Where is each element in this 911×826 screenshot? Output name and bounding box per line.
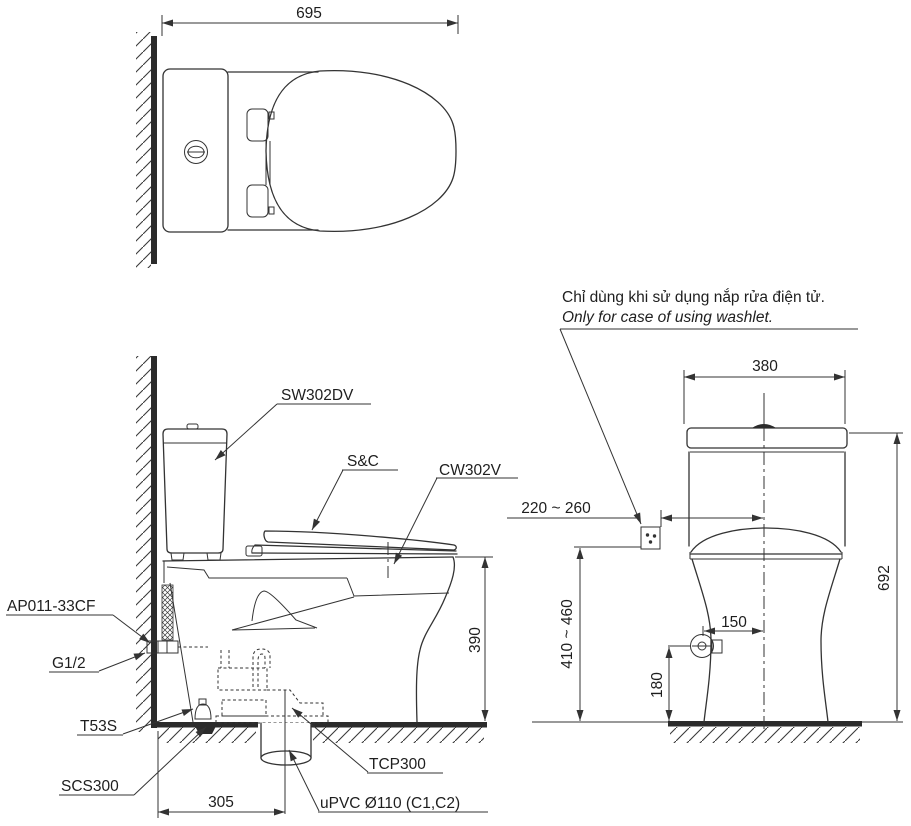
- pedestal-left: [692, 559, 711, 722]
- pedestal-right: [821, 559, 840, 722]
- label-floor-flange-text: SCS300: [61, 778, 119, 795]
- label-seat-cover-text: S&C: [347, 453, 379, 470]
- note-english: Only for case of using washlet.: [562, 309, 773, 326]
- dim-390-value: 390: [467, 627, 484, 653]
- tank-lid-front: [687, 428, 847, 448]
- dim-220-260-value: 220 ~ 260: [521, 500, 591, 517]
- seat-hinge: [247, 109, 274, 217]
- wall-hatch: [136, 356, 151, 732]
- front-view: Chỉ dùng khi sử dụng nắp rửa điện tử. On…: [507, 289, 903, 743]
- lid-button-front: [752, 424, 776, 428]
- label-seat-cover: S&C: [309, 453, 398, 532]
- floor-hatch: [313, 727, 484, 743]
- seat-front: [690, 528, 842, 559]
- seat-hinge-side: [246, 546, 262, 556]
- bowl-top: [228, 71, 456, 232]
- label-tank: SW302DV: [213, 387, 371, 463]
- floor-section: [532, 721, 903, 743]
- wall-line: [151, 36, 157, 264]
- tank-button: [187, 424, 198, 429]
- wall-section: [136, 32, 157, 268]
- note-vietnamese: Chỉ dùng khi sử dụng nắp rửa điện tử.: [562, 289, 825, 306]
- dim-410-460-value: 410 ~ 460: [559, 599, 576, 669]
- dim-150-value: 150: [721, 614, 747, 631]
- dim-692-value: 692: [876, 565, 893, 591]
- stop-valve-side: [195, 699, 211, 719]
- wall-hatch: [136, 32, 151, 268]
- dim-outlet-offset: 220 ~ 260: [507, 500, 763, 527]
- label-bowl-text: CW302V: [439, 462, 502, 479]
- supply-valve-front: [691, 635, 723, 658]
- dim-valve-height: 180: [649, 646, 691, 721]
- seat-lid-outline: [266, 71, 456, 232]
- seat-cover-side: [246, 531, 457, 578]
- label-tank-text: SW302DV: [281, 387, 354, 404]
- wall-section: [136, 356, 157, 732]
- wall-line: [151, 356, 157, 728]
- label-supply-hose: AP011-33CF: [6, 598, 152, 646]
- dim-692: 692: [849, 433, 903, 721]
- floor-line: [311, 722, 487, 728]
- label-water-inlet: G1/2: [49, 650, 146, 672]
- hidden-trapway: [216, 649, 328, 723]
- drain-pipe: [261, 723, 311, 765]
- tank-side: [163, 424, 227, 560]
- outlet-socket: [641, 527, 660, 549]
- bowl-front-profile: [416, 557, 454, 722]
- supply-tube-section: [162, 585, 173, 640]
- label-stop-valve-text: T53S: [80, 718, 117, 735]
- rim-top: [163, 557, 453, 561]
- side-view: SW302DV S&C CW302V AP011-33CF G1/2: [6, 356, 518, 818]
- dim-180-value: 180: [649, 672, 666, 698]
- dim-305-value: 305: [208, 794, 234, 811]
- label-water-inlet-text: G1/2: [52, 655, 86, 672]
- dim-390: 390: [455, 557, 493, 721]
- floor-line: [668, 721, 862, 727]
- bowl-side: [147, 557, 454, 814]
- top-view: 695: [136, 5, 458, 268]
- toilet-front: [687, 393, 847, 733]
- label-outlet-adapter-text: TCP300: [369, 756, 426, 773]
- label-supply-hose-text: AP011-33CF: [7, 598, 95, 615]
- toilet-installation-drawing: 695: [0, 0, 911, 826]
- dim-outlet-height: 410 ~ 460: [559, 547, 641, 721]
- technical-drawing-page: 695: [0, 0, 911, 826]
- dim-valve-offset: 150: [703, 614, 763, 636]
- dim-695-value: 695: [296, 5, 322, 22]
- dim-380-value: 380: [752, 358, 778, 375]
- washlet-note: Chỉ dùng khi sử dụng nắp rửa điện tử. On…: [560, 289, 858, 525]
- dim-695: 695: [162, 5, 458, 36]
- label-drain-pipe-text: uPVC Ø110 (C1,C2): [320, 795, 460, 812]
- floor-hatch: [670, 727, 860, 743]
- tank-top: [163, 69, 228, 232]
